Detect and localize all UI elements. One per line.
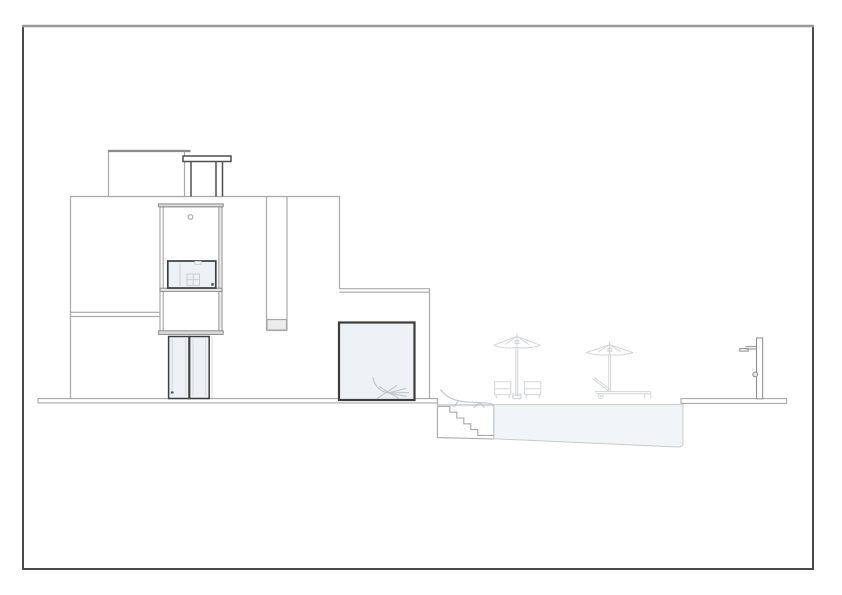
roof-pergola [183,156,231,197]
shower-head [740,349,748,352]
parasol-2-pole [609,355,611,392]
glass-door-right [190,337,210,399]
parasol-1-ribs [505,336,529,347]
tower-light-fixture [188,215,193,220]
pool-pit-left-wall [437,403,493,439]
elevation-drawing [0,0,842,595]
outdoor-shower [740,338,763,399]
cube-chair-right [525,382,541,399]
ground-slab-right [681,399,787,404]
cube-chair-right-legs [526,395,539,399]
picture-window [339,323,415,401]
drawing-frame [22,26,814,569]
parasol-1-pole [516,348,518,396]
cube-chair-left-body [495,382,511,395]
window-corner-fitting [211,283,213,286]
tower-top-cap [159,204,224,207]
roof-stair-bulkhead [109,151,185,197]
upper-window-glass [168,261,216,288]
parasol-2 [586,342,633,392]
sun-lounger [592,378,651,399]
balcony-slab-line [71,312,161,316]
door-handle [171,392,174,394]
door-details [171,337,494,406]
recess-slot-shadow [267,320,287,331]
shower-valve [753,372,758,377]
cube-chair-left-legs [496,395,509,399]
parasol-2-ribs [598,345,621,355]
tower-upper-window [168,261,216,288]
window-vent-tab [195,261,201,264]
tower-right-shadow-rail [219,207,222,334]
pool-water [437,405,683,447]
frame-rect [23,26,813,569]
sun-lounger-backrest [592,378,611,392]
pool-steps [437,406,493,435]
cube-chair-right-body [525,382,541,395]
drawing-sheet [0,0,842,595]
tower-glass-doors [169,337,210,399]
tower-bottom-cap [159,331,224,335]
picture-window-glass [339,323,415,401]
cube-chair-left [495,382,511,399]
pool-basin [494,405,683,447]
poolside-chaise-body [441,390,493,407]
pool-furniture [494,334,651,399]
pergola-beam [183,156,231,162]
sun-lounger-wheel [598,394,603,399]
shower-post [757,338,763,399]
